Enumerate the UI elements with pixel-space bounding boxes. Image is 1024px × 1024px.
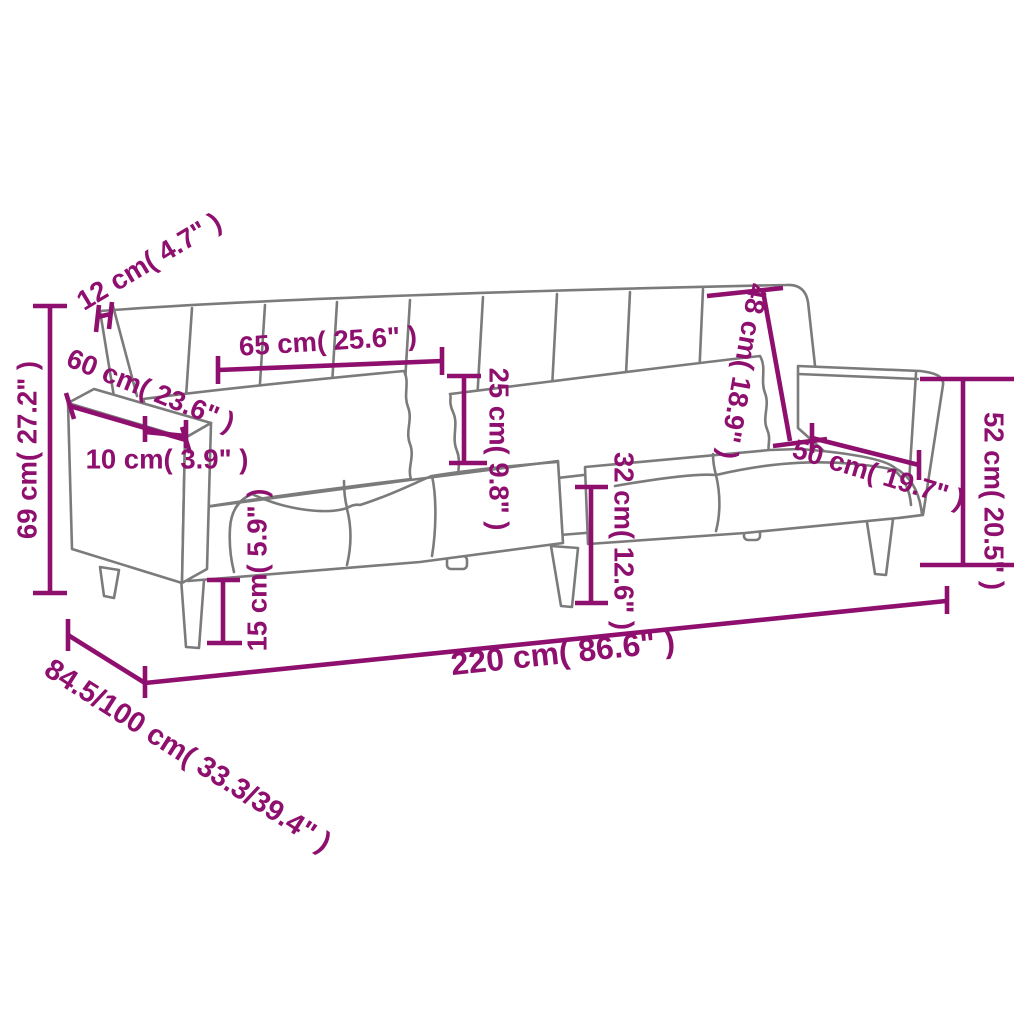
dimension-label-armrest-height: 52 cm( 20.5" ): [979, 412, 1010, 590]
dimension-label-armrest-width: 10 cm( 3.9" ): [86, 443, 249, 474]
dim-line: [97, 314, 111, 317]
sofa-dimension-diagram-page: 12 cm( 4.7" ) 69 cm( 27.2" ) 60 cm( 23.6…: [0, 0, 1024, 1024]
sofa-dimension-diagram: 12 cm( 4.7" ) 69 cm( 27.2" ) 60 cm( 23.6…: [0, 0, 1024, 1024]
dimension-label-backrest-thickness: 12 cm( 4.7" ): [71, 206, 227, 316]
dimension-label-overall-height: 69 cm( 27.2" ): [11, 361, 42, 539]
leg-right: [866, 516, 893, 575]
dimension-label-leg-height: 15 cm( 5.9" ): [241, 489, 272, 652]
leg-front-left: [181, 578, 204, 648]
dimension-label-seat-height: 32 cm( 12.6" ): [609, 452, 640, 630]
dimension-label-overall-width: 220 cm( 86.6" ): [449, 623, 677, 682]
dimension-label-overall-depth: 84.5/100 cm( 33.3/39.4" ): [39, 653, 337, 859]
dimension-overall-height: 69 cm( 27.2" ): [11, 306, 67, 593]
leg-middle: [551, 546, 578, 607]
dimension-label-pillow-height: 25 cm( 9.8" ): [484, 368, 515, 531]
leg-back-left: [100, 567, 119, 598]
dimension-overall-depth: 84.5/100 cm( 33.3/39.4" ): [39, 619, 337, 859]
